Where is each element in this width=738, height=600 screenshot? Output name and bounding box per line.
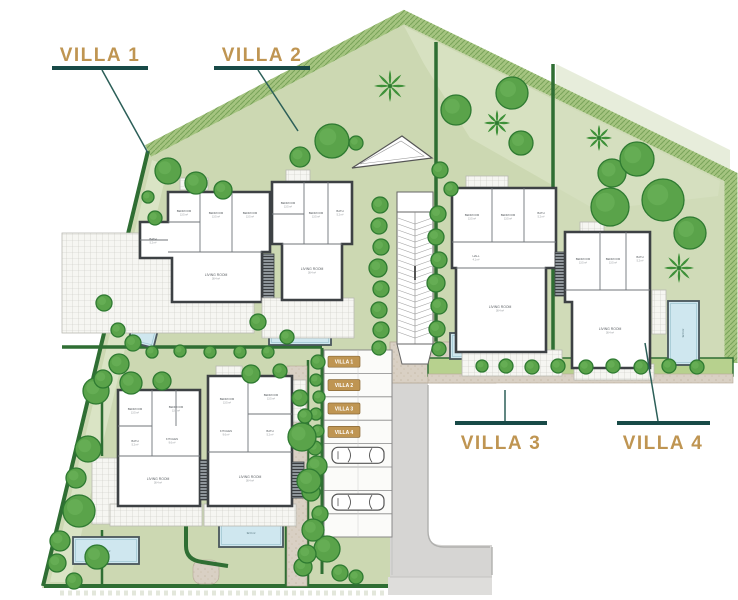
room-area-label: 13.5 m² bbox=[312, 216, 320, 219]
room-label: BEDROOM bbox=[220, 397, 235, 401]
stairs bbox=[555, 252, 565, 296]
tree-icon bbox=[204, 346, 216, 358]
room-label: BEDROOM bbox=[128, 407, 143, 411]
pool-area-label: 32.0 m² bbox=[681, 328, 685, 337]
room-area-label: 9.6 m² bbox=[223, 434, 230, 437]
palm-tree-icon bbox=[374, 70, 406, 102]
room-area-label: 5.2 m² bbox=[637, 260, 644, 263]
room-area-label: 9.6 m² bbox=[169, 442, 176, 445]
tree-icon bbox=[369, 259, 387, 277]
room-label: BEDROOM bbox=[264, 393, 279, 397]
callout-villa-4-bar bbox=[617, 421, 710, 425]
callout-villa-2-label[interactable]: VILLA 2 bbox=[222, 45, 303, 66]
tree-icon bbox=[310, 374, 322, 386]
tree-icon bbox=[174, 345, 186, 357]
tree-icon bbox=[690, 360, 704, 374]
room-label: BEDROOM bbox=[243, 211, 258, 215]
room-area-label: 5.2 m² bbox=[132, 444, 139, 447]
tree-icon bbox=[311, 355, 325, 369]
tree-icon bbox=[430, 206, 446, 222]
tree-icon bbox=[444, 182, 458, 196]
room-label: BEDROOM bbox=[465, 213, 480, 217]
parking-badge: VILLA 4 bbox=[328, 426, 360, 437]
room-area-label: 38.4 m² bbox=[212, 278, 220, 281]
tree-icon bbox=[234, 346, 246, 358]
room-label: LIVING ROOM bbox=[489, 305, 512, 309]
tree-icon bbox=[349, 570, 363, 584]
room-area-label: 38.4 m² bbox=[496, 310, 504, 313]
room-area-label: 13.5 m² bbox=[579, 262, 587, 265]
callout-villa-4-label[interactable]: VILLA 4 bbox=[623, 433, 704, 454]
room-area-label: 13.5 m² bbox=[212, 216, 220, 219]
tree-icon bbox=[142, 191, 154, 203]
tree-icon bbox=[94, 370, 112, 388]
room-label: LIVING ROOM bbox=[147, 477, 170, 481]
swimming-pool: 32.0 m² bbox=[668, 301, 699, 365]
tree-icon bbox=[214, 181, 232, 199]
callout-villa-1-bar bbox=[52, 66, 148, 70]
tree-icon bbox=[371, 218, 387, 234]
tree-icon bbox=[66, 468, 86, 488]
villa-footprint bbox=[208, 376, 292, 506]
room-area-label: 38.4 m² bbox=[308, 272, 316, 275]
room-label: LIVING ROOM bbox=[599, 327, 622, 331]
parking-badge-label: VILLA 1 bbox=[335, 360, 354, 366]
tree-icon bbox=[66, 573, 82, 589]
room-label: BEDROOM bbox=[281, 201, 296, 205]
car-icon bbox=[332, 447, 384, 463]
tree-icon bbox=[153, 372, 171, 390]
tree-icon bbox=[476, 360, 488, 372]
villa-footprint bbox=[565, 232, 650, 368]
tree-icon bbox=[250, 314, 266, 330]
tree-icon bbox=[75, 436, 101, 462]
villa-building-1[interactable]: BEDROOM13.5 m²BEDROOM13.5 m²BEDROOM13.5 … bbox=[62, 178, 274, 333]
room-label: BATH bbox=[149, 237, 156, 241]
room-label: LIVING ROOM bbox=[205, 273, 228, 277]
palm-tree-icon bbox=[664, 253, 694, 283]
room-area-label: 38.4 m² bbox=[154, 482, 162, 485]
tree-icon bbox=[50, 531, 70, 551]
terrace bbox=[286, 170, 310, 182]
room-label: BEDROOM bbox=[576, 257, 591, 261]
tree-icon bbox=[280, 330, 294, 344]
room-label: BEDROOM bbox=[169, 405, 184, 409]
room-label: BEDROOM bbox=[309, 211, 324, 215]
site-plan-drawing: VILLA 1VILLA 2VILLA 3VILLA 4 32.0 m²32.0… bbox=[0, 0, 738, 600]
room-area-label: 13.5 m² bbox=[468, 218, 476, 221]
room-area-label: 38.4 m² bbox=[606, 332, 614, 335]
tree-icon bbox=[372, 197, 388, 213]
room-area-label: 38.4 m² bbox=[246, 480, 254, 483]
tree-icon bbox=[525, 360, 539, 374]
tree-icon bbox=[155, 158, 181, 184]
tree-icon bbox=[591, 188, 629, 226]
tree-icon bbox=[242, 365, 260, 383]
tree-icon bbox=[109, 354, 129, 374]
tree-icon bbox=[579, 360, 593, 374]
room-area-label: 5.2 m² bbox=[538, 216, 545, 219]
tree-icon bbox=[298, 409, 312, 423]
room-area-label: 5.2 m² bbox=[150, 242, 157, 245]
tree-icon bbox=[606, 359, 620, 373]
tree-icon bbox=[496, 77, 528, 109]
tree-icon bbox=[432, 342, 446, 356]
tree-icon bbox=[431, 252, 447, 268]
tree-icon bbox=[315, 124, 349, 158]
room-label: BEDROOM bbox=[501, 213, 516, 217]
tree-icon bbox=[349, 136, 363, 150]
parking-badge: VILLA 2 bbox=[328, 380, 360, 391]
tree-icon bbox=[120, 372, 142, 394]
tree-icon bbox=[427, 274, 445, 292]
parking-badge-label: VILLA 2 bbox=[335, 383, 354, 389]
palm-tree-icon bbox=[484, 110, 510, 136]
tree-icon bbox=[96, 295, 112, 311]
callout-villa-1-leader bbox=[102, 70, 148, 153]
car-icon bbox=[332, 494, 384, 510]
room-label: KITCHEN bbox=[220, 429, 232, 433]
tree-icon bbox=[372, 341, 386, 355]
tree-icon bbox=[662, 359, 676, 373]
room-label: BATH bbox=[131, 439, 138, 443]
callout-villa-1-label[interactable]: VILLA 1 bbox=[60, 45, 141, 66]
tree-icon bbox=[551, 359, 565, 373]
tree-icon bbox=[302, 519, 324, 541]
tree-icon bbox=[273, 364, 287, 378]
room-area-label: 13.5 m² bbox=[609, 262, 617, 265]
tree-icon bbox=[373, 281, 389, 297]
tree-icon bbox=[85, 545, 109, 569]
room-area-label: 13.5 m² bbox=[223, 402, 231, 405]
ramp-foot bbox=[397, 344, 433, 364]
access-road-lip bbox=[388, 577, 492, 595]
tree-icon bbox=[63, 495, 95, 527]
parking-area: VILLA 1VILLA 2VILLA 3VILLA 4 bbox=[324, 350, 392, 537]
site-plan: VILLA 1VILLA 2VILLA 3VILLA 4 32.0 m²32.0… bbox=[0, 0, 738, 600]
road-curb bbox=[428, 385, 490, 547]
room-label: BATH bbox=[537, 211, 544, 215]
tree-icon bbox=[371, 302, 387, 318]
tree-icon bbox=[431, 298, 447, 314]
villa-building-4[interactable]: BEDROOM13.5 m²BEDROOM13.5 m²BATH5.2 m²LI… bbox=[565, 222, 666, 380]
callout-villa-1[interactable]: VILLA 1 bbox=[52, 45, 148, 153]
tree-icon bbox=[441, 95, 471, 125]
tree-icon bbox=[429, 321, 445, 337]
room-area-label: 13.5 m² bbox=[131, 412, 139, 415]
room-area-label: 13.5 m² bbox=[172, 410, 180, 413]
room-label: LIVING ROOM bbox=[239, 475, 262, 479]
room-area-label: 4.1 m² bbox=[473, 259, 480, 262]
parking-badge: VILLA 3 bbox=[328, 403, 360, 414]
tree-icon bbox=[262, 346, 274, 358]
tree-icon bbox=[432, 162, 448, 178]
tree-icon bbox=[499, 359, 513, 373]
parking-badge-label: VILLA 4 bbox=[335, 430, 354, 436]
palm-tree-icon bbox=[586, 125, 612, 151]
tree-icon bbox=[290, 147, 310, 167]
room-area-label: 13.5 m² bbox=[284, 206, 292, 209]
tree-icon bbox=[298, 545, 316, 563]
room-label: LIVING ROOM bbox=[301, 267, 324, 271]
room-label: BEDROOM bbox=[209, 211, 224, 215]
ramp-center-tick bbox=[414, 266, 416, 280]
room-area-label: 13.5 m² bbox=[246, 216, 254, 219]
callout-villa-3-label[interactable]: VILLA 3 bbox=[461, 433, 542, 454]
terrace bbox=[262, 298, 354, 338]
room-label: KITCHEN bbox=[166, 437, 178, 441]
room-label: BEDROOM bbox=[177, 209, 192, 213]
room-label: BATH bbox=[266, 429, 273, 433]
tree-icon bbox=[288, 423, 316, 451]
tree-icon bbox=[313, 391, 325, 403]
tree-icon bbox=[292, 390, 308, 406]
tree-icon bbox=[185, 172, 207, 194]
tree-icon bbox=[111, 323, 125, 337]
tree-icon bbox=[332, 565, 348, 581]
callout-villa-3-bar bbox=[455, 421, 547, 425]
tree-icon bbox=[146, 346, 158, 358]
tree-icon bbox=[674, 217, 706, 249]
room-label: BEDROOM bbox=[606, 257, 621, 261]
callout-villa-3[interactable]: VILLA 3 bbox=[455, 390, 547, 454]
room-area-label: 13.5 m² bbox=[180, 214, 188, 217]
tree-icon bbox=[48, 554, 66, 572]
room-label: HALL bbox=[473, 254, 480, 258]
tree-icon bbox=[125, 335, 141, 351]
room-area-label: 5.2 m² bbox=[337, 214, 344, 217]
tree-icon bbox=[373, 239, 389, 255]
tree-icon bbox=[642, 179, 684, 221]
ramp-landing bbox=[397, 192, 433, 212]
room-area-label: 13.5 m² bbox=[504, 218, 512, 221]
room-label: BATH bbox=[636, 255, 643, 259]
tree-icon bbox=[373, 322, 389, 338]
callout-villa-2-bar bbox=[214, 66, 310, 70]
terrace bbox=[466, 176, 508, 188]
room-area-label: 5.2 m² bbox=[267, 434, 274, 437]
tree-icon bbox=[148, 211, 162, 225]
terrace bbox=[652, 290, 666, 334]
parking-badge-label: VILLA 3 bbox=[335, 407, 354, 413]
tree-icon bbox=[634, 360, 648, 374]
tree-icon bbox=[428, 229, 444, 245]
pool-area-label: 32.0 m² bbox=[247, 531, 256, 535]
tree-icon bbox=[620, 142, 654, 176]
tree-icon bbox=[297, 469, 321, 493]
terrace bbox=[216, 366, 242, 376]
room-label: BATH bbox=[336, 209, 343, 213]
stairs bbox=[263, 254, 274, 300]
room-area-label: 13.5 m² bbox=[267, 398, 275, 401]
villa-footprint bbox=[272, 182, 352, 300]
parking-badge: VILLA 1 bbox=[328, 356, 360, 367]
tree-icon bbox=[509, 131, 533, 155]
